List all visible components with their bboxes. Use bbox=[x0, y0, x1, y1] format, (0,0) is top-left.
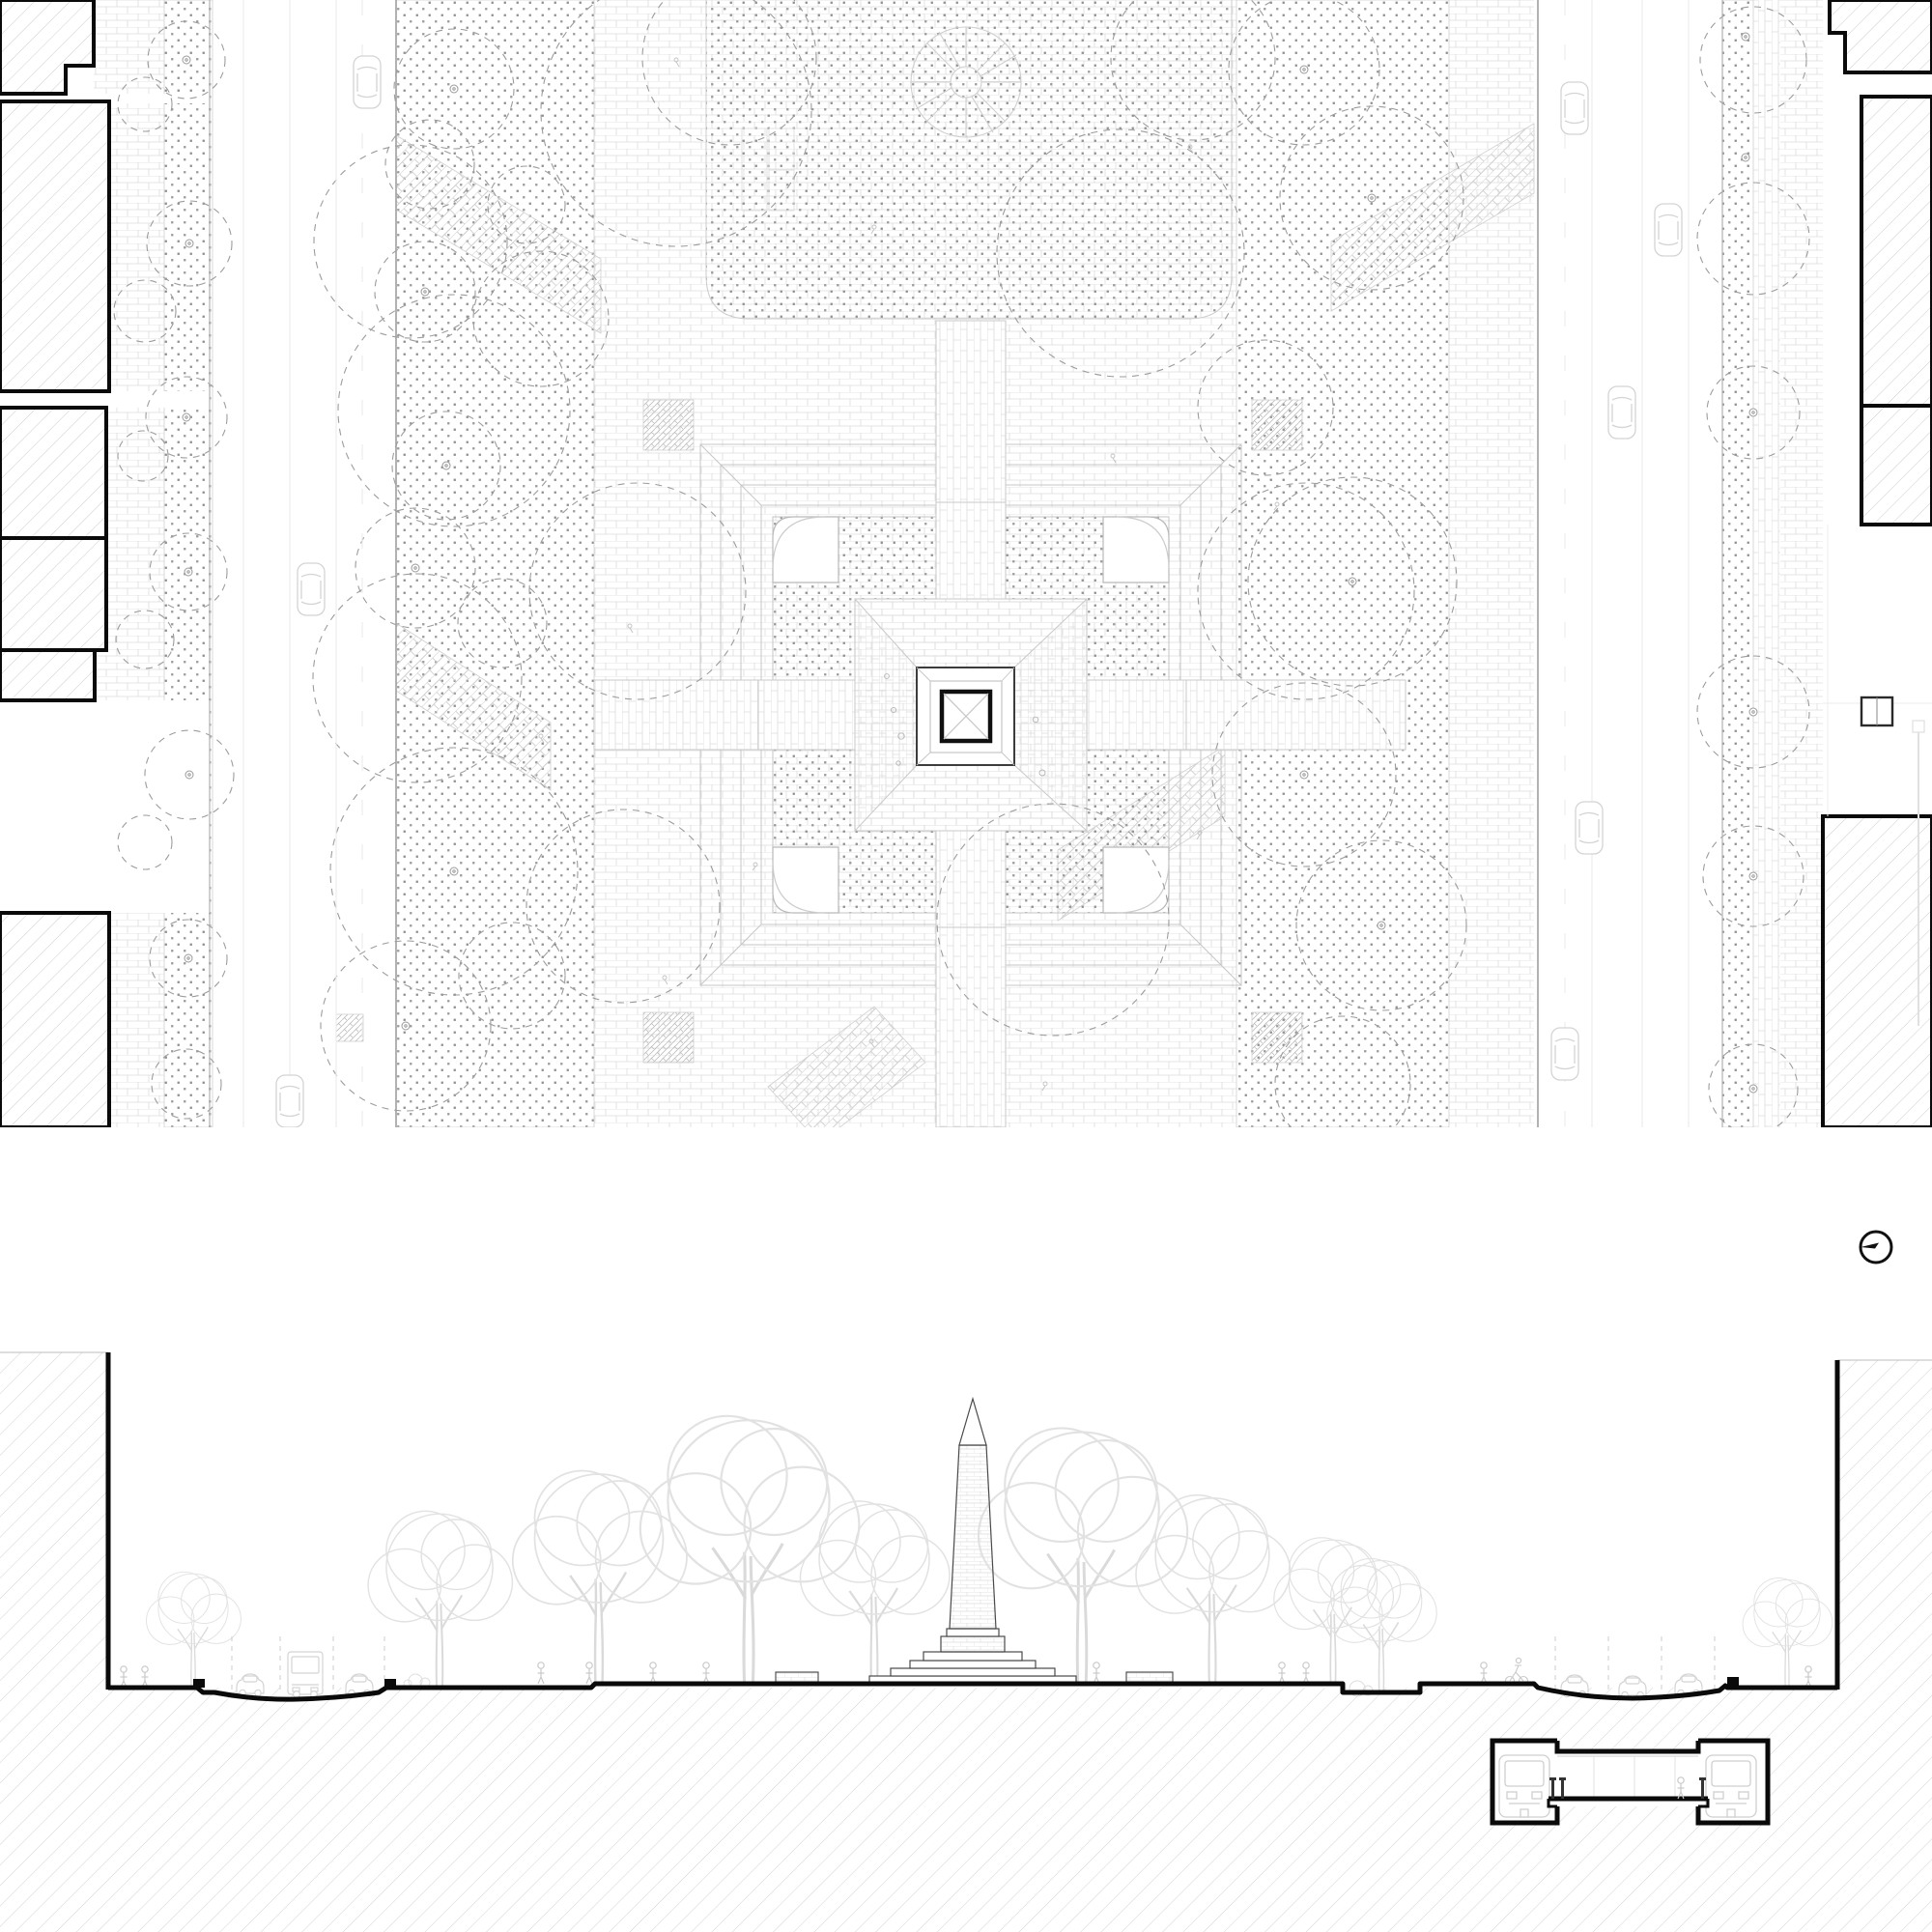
herringbone-patch bbox=[1252, 1012, 1302, 1063]
buildings-right bbox=[1823, 0, 1932, 1127]
building bbox=[0, 913, 109, 1127]
street-right bbox=[1538, 0, 1722, 1127]
sidewalk-right-edge bbox=[1753, 0, 1780, 1127]
sidewalk-left-fill2 bbox=[95, 650, 108, 700]
drawing-canvas bbox=[0, 0, 1932, 1932]
cyclist bbox=[1506, 1658, 1528, 1685]
section-drawing bbox=[0, 1352, 1932, 1932]
obelisk-shaft bbox=[950, 1445, 996, 1629]
obelisk-plan bbox=[855, 599, 1087, 831]
alley-cut bbox=[0, 391, 210, 408]
herringbone-patch bbox=[336, 1014, 363, 1041]
herringbone-patch bbox=[643, 1012, 694, 1063]
drawing-sheet bbox=[0, 0, 1932, 1932]
building bbox=[0, 650, 95, 700]
cars-plan bbox=[276, 56, 381, 1127]
building bbox=[0, 0, 94, 94]
buildings-left bbox=[0, 0, 109, 1127]
herringbone-patch bbox=[643, 400, 694, 450]
building-section-left bbox=[0, 1352, 108, 1688]
north-arrow-icon bbox=[1861, 1232, 1891, 1263]
building bbox=[1823, 816, 1932, 1127]
site-plan bbox=[0, 0, 1932, 1151]
train bbox=[1706, 1755, 1756, 1817]
sidewalk-left bbox=[108, 0, 164, 1127]
cars-plan bbox=[1551, 82, 1682, 1080]
planting-strip-right bbox=[1722, 0, 1753, 1127]
lane-lines bbox=[1565, 0, 1689, 1127]
building bbox=[1830, 0, 1932, 72]
building bbox=[0, 408, 106, 538]
building bbox=[1861, 97, 1932, 406]
building bbox=[0, 538, 106, 650]
street-left bbox=[210, 0, 396, 1127]
forecourt-left bbox=[0, 700, 210, 913]
building bbox=[1861, 406, 1932, 525]
building bbox=[0, 101, 109, 391]
top-lawn bbox=[706, 0, 1232, 319]
sidewalk-right bbox=[1780, 0, 1823, 1127]
lawn-band-right bbox=[1236, 0, 1449, 1127]
building-section-right bbox=[1837, 1360, 1932, 1688]
herringbone-patch bbox=[1252, 400, 1302, 450]
obelisk-pyramidion bbox=[959, 1399, 986, 1445]
sidewalk-left-fill bbox=[94, 0, 108, 101]
train bbox=[1499, 1755, 1549, 1817]
